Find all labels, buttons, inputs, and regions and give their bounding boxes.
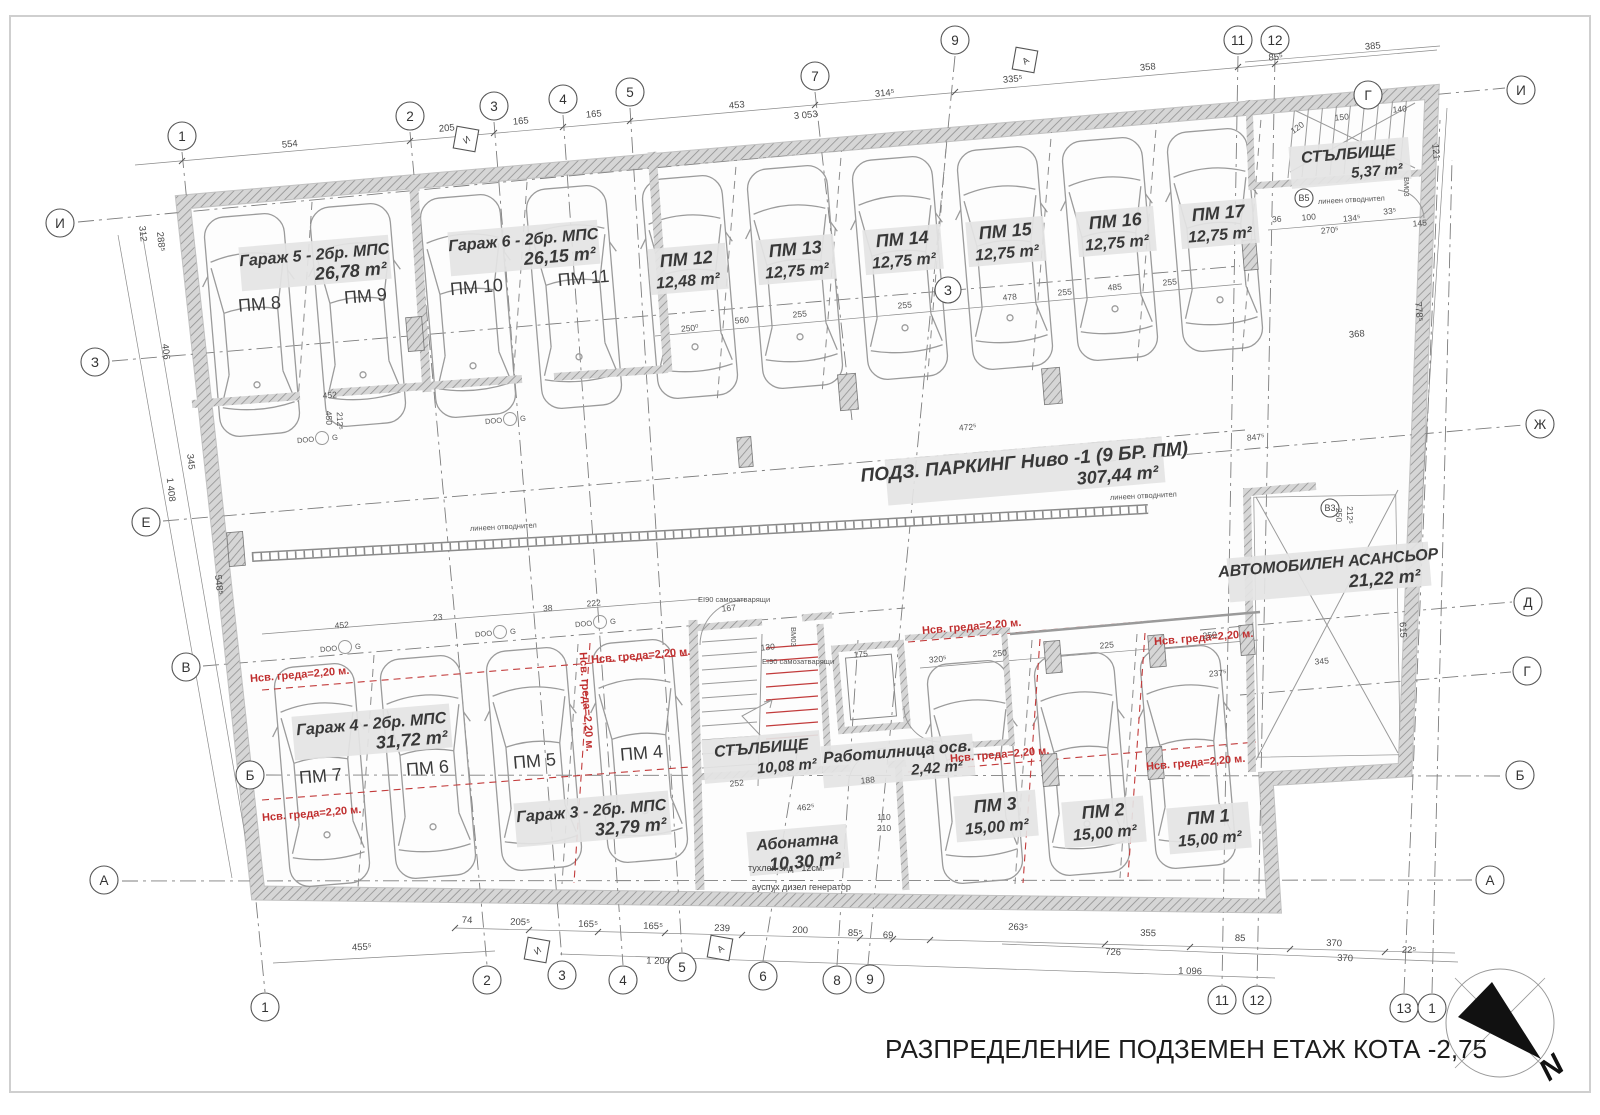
dim-label: 485 <box>1107 281 1122 292</box>
spot-label: ПМ 6 <box>405 756 449 780</box>
dim-label: 134⁵ <box>1342 212 1361 224</box>
dim-label: 165 <box>585 108 602 120</box>
dim-label: 726 <box>1105 947 1121 959</box>
drain-symbol-label: G <box>510 627 517 636</box>
grid-bubble-label: 1 <box>178 129 186 144</box>
dim-label: 110 <box>877 812 891 822</box>
dim-label: 36 <box>1272 214 1283 225</box>
dim-label: 239 <box>714 923 730 935</box>
dim-label: 263⁵ <box>1008 922 1028 934</box>
grid-bubble-label: 11 <box>1215 993 1229 1008</box>
dim-label: 358 <box>1139 61 1156 73</box>
grid-bubble-label: И <box>1516 83 1526 98</box>
dim-label: 145 <box>1412 217 1427 228</box>
dim-label: 222 <box>586 597 601 608</box>
dim-label: 200 <box>792 925 808 937</box>
dim-label: 165⁵ <box>578 919 598 931</box>
spot-label-pm15: ПМ 15 12,75 m² <box>965 216 1046 267</box>
dim-label: 847⁵ <box>1246 431 1265 443</box>
dim-label: 140 <box>1392 103 1407 114</box>
dim-label: 615 <box>1397 622 1409 638</box>
dim-label: 250 <box>1334 508 1344 522</box>
spot-label-pm13: ПМ 13 12,75 m² <box>755 234 836 285</box>
dim-label: 188 <box>860 774 875 785</box>
grid-bubble-label: 12 <box>1267 33 1282 48</box>
spot-label: ПМ 2 <box>1081 799 1125 823</box>
dim-label: 345 <box>1314 655 1329 666</box>
dim-label: 462⁵ <box>796 801 815 813</box>
grid-bubble-label: 8 <box>833 973 841 988</box>
dim-label: 205⁵ <box>510 917 530 929</box>
grid-bubble-label: А <box>1485 873 1494 888</box>
dim-label: 250 <box>1202 629 1217 640</box>
dim-label: 452 <box>334 619 349 630</box>
spot-label: ПМ 8 <box>237 292 281 316</box>
dim-label: 778⁵ <box>1412 301 1425 322</box>
dim-label: 130 <box>760 641 775 652</box>
grid-bubble-label: 2 <box>406 109 414 124</box>
dim-label: 225 <box>1099 639 1114 650</box>
dim-label: 255 <box>1057 286 1072 297</box>
drain-symbol-label: DOO <box>475 629 493 639</box>
grid-bubble-label: 2 <box>483 973 491 988</box>
drain-symbol-label: DOO <box>297 435 315 445</box>
dim-label: 121 <box>1429 143 1441 160</box>
dim-label: 370 <box>1326 938 1342 950</box>
dim-label: 452 <box>322 389 337 400</box>
grid-bubble-label: 4 <box>619 973 627 988</box>
dim-label: 165 <box>512 115 529 127</box>
dim-label: 85 <box>1235 933 1246 944</box>
dim-label: 167 <box>721 602 736 613</box>
spot-label: ПМ 5 <box>512 749 556 773</box>
grid-bubble-label: 1 <box>1428 1001 1436 1016</box>
dim-label: 406 <box>159 343 172 360</box>
grid-bubble-label: 4 <box>559 92 567 107</box>
grid-bubble-label: А <box>99 873 108 888</box>
grid-bubble-label: Ж <box>1534 417 1547 432</box>
dim-label: 255 <box>897 299 912 310</box>
dim-label: 335⁵ <box>1002 73 1023 86</box>
grid-bubble-label: 13 <box>1396 1001 1411 1016</box>
dim-label: 23 <box>433 612 444 623</box>
drain-symbol-label: DOO <box>320 644 338 654</box>
spot-label-pm3: ПМ 3 15,00 m² <box>953 790 1039 843</box>
dim-label: 212⁵ <box>1345 506 1355 524</box>
dim-label: 1 096 <box>1178 966 1202 978</box>
fire-door-note: EI90 самозатварящи <box>762 657 834 666</box>
grid-bubble-label: 7 <box>811 69 819 84</box>
dim-label: 205 <box>438 122 455 134</box>
grid-bubble-label: 1 <box>261 1000 269 1015</box>
spot-label: ПМ 7 <box>298 764 342 788</box>
drain-symbol-label: G <box>332 433 339 442</box>
grid-bubble-label: 3 <box>558 968 566 983</box>
spot-label: ПМ 4 <box>619 741 663 765</box>
dim-label: 33⁵ <box>1383 205 1397 216</box>
floor-plan-canvas: Гараж 5 - 2бр. МПС 26,78 m² Гараж 6 - 2б… <box>0 0 1600 1115</box>
dim-label: 270⁵ <box>1320 224 1339 236</box>
drawing-title: РАЗПРЕДЕЛЕНИЕ ПОДЗЕМЕН ЕТАЖ КОТА -2,75 <box>885 1034 1487 1064</box>
dim-label: 320⁵ <box>928 653 947 665</box>
spot-label-pm12: ПМ 12 12,48 m² <box>647 243 729 295</box>
grid-bubble-label: Д <box>1523 595 1532 610</box>
dim-label: 22⁵ <box>1402 945 1417 957</box>
vm03-note: ВМ03 <box>1402 177 1411 197</box>
grid-bubble-label: В <box>181 660 190 675</box>
grid-bubble-label: 9 <box>866 972 874 987</box>
dim-label: 355 <box>1140 928 1156 940</box>
brick-wall-note: тухлен зид - 12см. <box>748 863 825 873</box>
drain-symbol-label: G <box>520 414 527 423</box>
dim-label: 237⁵ <box>1208 667 1227 679</box>
dim-label: 150 <box>1334 111 1349 122</box>
grid-bubble-label: Г <box>1364 88 1372 103</box>
dim-label: 255 <box>792 308 807 319</box>
grid-bubble-label: 9 <box>951 33 959 48</box>
grid-bubble-label: 5 <box>626 85 634 100</box>
dim-label: 455⁵ <box>352 941 372 953</box>
dim-label: 74 <box>462 915 473 926</box>
grid-bubble-label: Г <box>1523 664 1531 679</box>
grid-bubble-label: З <box>91 355 99 370</box>
grid-bubble-label: Б <box>246 768 255 783</box>
spot-label-pm16: ПМ 16 12,75 m² <box>1075 206 1156 257</box>
grid-bubble-label: Е <box>141 515 150 530</box>
spot-label-pm2: ПМ 2 15,00 m² <box>1061 796 1147 849</box>
dim-label: 554 <box>281 138 298 150</box>
spot-label-pm1: ПМ 1 15,00 m² <box>1166 802 1252 855</box>
dim-label: 560 <box>734 314 749 325</box>
dim-label: 250 <box>992 647 1007 658</box>
spot-label-pm14: ПМ 14 12,75 m² <box>862 224 943 275</box>
dim-label: 252 <box>729 777 744 788</box>
grid-bubble-label: З <box>944 283 952 298</box>
drain-symbol-label: G <box>355 642 362 651</box>
dim-label: 250⁰ <box>681 322 700 334</box>
spot-label: ПМ 1 <box>1186 805 1230 829</box>
grid-bubble-label: 6 <box>759 969 767 984</box>
dim-label: 175 <box>853 648 868 659</box>
dim-label: 3 053 <box>793 109 818 122</box>
dim-label: 385 <box>1364 40 1381 52</box>
grid-bubble-label: 5 <box>678 960 686 975</box>
grid-bubble-label: И <box>55 216 65 231</box>
drain-symbol-label: DOO <box>485 416 503 426</box>
v3-marker-label: В3 <box>1324 503 1335 513</box>
dim-label: 100 <box>1301 211 1316 222</box>
grid-bubble-label: 11 <box>1231 33 1245 48</box>
grid-bubble-label: 3 <box>490 99 498 114</box>
dim-label: 312 <box>136 225 149 242</box>
dim-label: 288⁵ <box>154 231 167 252</box>
dim-label: 478 <box>1002 291 1017 302</box>
dim-label: 450 <box>324 411 334 426</box>
dim-label: 212⁵ <box>335 412 346 430</box>
grid-bubble-label: 12 <box>1249 993 1264 1008</box>
b5-marker-label: В5 <box>1298 193 1309 203</box>
dim-label: 85⁵ <box>848 928 863 940</box>
dim-label: 548⁵ <box>212 574 225 595</box>
spot-label: ПМ 9 <box>343 284 387 308</box>
dim-label: 69 <box>883 930 894 941</box>
grid-bubble-label: Б <box>1516 768 1525 783</box>
drain-symbol-label: DOO <box>575 619 593 629</box>
dim-label: 368 <box>1348 328 1365 340</box>
dim-label: 345 <box>184 453 197 470</box>
dim-label: 314⁵ <box>874 87 895 100</box>
drain-symbol-label: G <box>610 617 617 626</box>
dim-label: 255 <box>1162 276 1177 287</box>
exhaust-note: ауспух дизел генератор <box>752 882 851 892</box>
dim-label: 38 <box>543 603 554 614</box>
dim-label: 210 <box>877 823 891 833</box>
dim-label: 453 <box>728 99 745 111</box>
vm03-note: ВМ03 <box>789 627 798 647</box>
dim-label: 165⁵ <box>643 921 663 933</box>
dim-label: 370 <box>1337 953 1353 965</box>
spot-label-pm17: ПМ 17 12,75 m² <box>1178 198 1259 249</box>
spot-label: ПМ 3 <box>973 793 1017 817</box>
dim-label: 472⁵ <box>958 421 977 433</box>
